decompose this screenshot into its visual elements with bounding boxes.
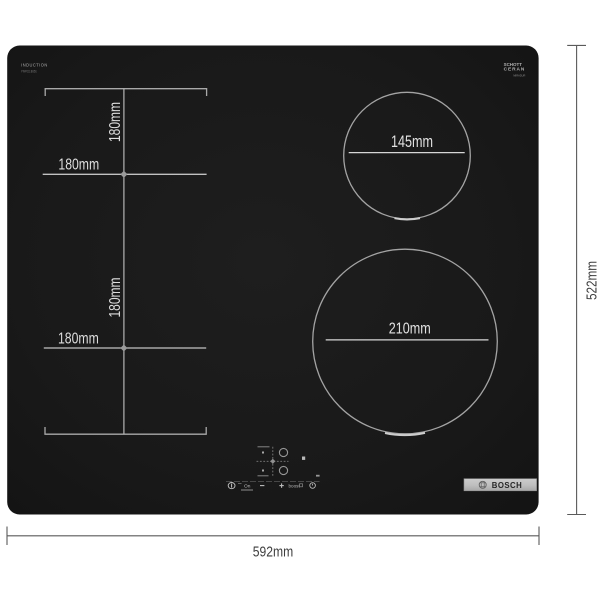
svg-text:145mm: 145mm	[391, 133, 433, 151]
svg-text:210mm: 210mm	[389, 321, 431, 338]
svg-text:PWP611BB5E: PWP611BB5E	[21, 69, 37, 73]
svg-text:INDUCTION: INDUCTION	[21, 62, 48, 67]
svg-text:BOSCH: BOSCH	[492, 480, 522, 490]
svg-text:592mm: 592mm	[253, 543, 293, 560]
svg-text:522mm: 522mm	[585, 261, 600, 300]
svg-text:180mm: 180mm	[107, 278, 124, 318]
svg-text:CERAN: CERAN	[504, 67, 526, 72]
svg-text:boost: boost	[289, 483, 301, 488]
svg-text:MIRADUR: MIRADUR	[513, 73, 525, 77]
svg-text:180mm: 180mm	[58, 331, 99, 348]
svg-text:180mm: 180mm	[107, 102, 124, 142]
svg-text:On: On	[244, 483, 251, 489]
svg-text:180mm: 180mm	[58, 157, 99, 174]
